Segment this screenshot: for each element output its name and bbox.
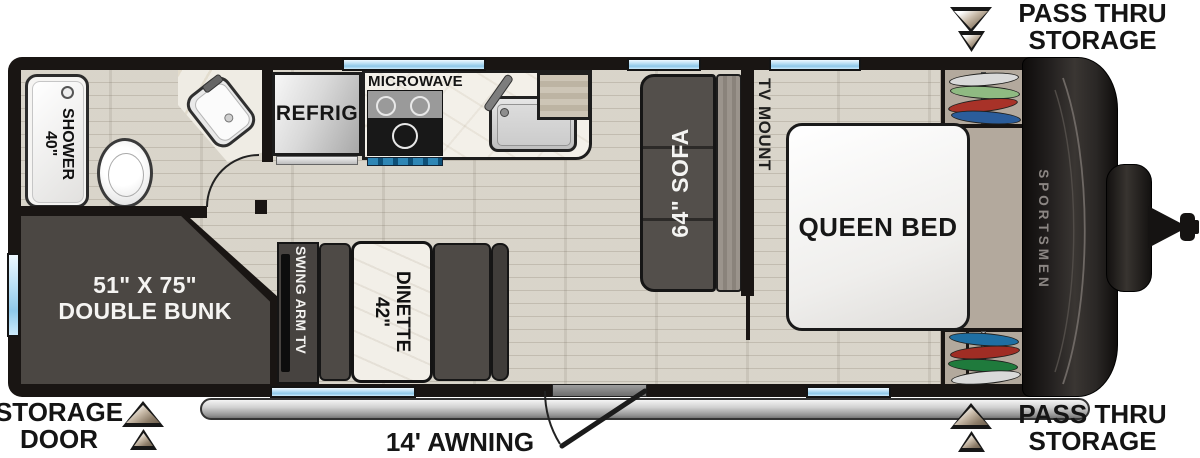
tv-mount-label: TV MOUNT: [754, 78, 774, 238]
queen-bed-label: QUEEN BED: [798, 212, 957, 243]
window-kitchen: [342, 58, 486, 71]
pass-thru-storage-bottom-label: PASS THRU STORAGE: [990, 401, 1195, 455]
shower-label: 40"SHOWER: [30, 83, 88, 205]
down-arrow-icon: [950, 7, 992, 33]
refrigerator: REFRIG: [272, 72, 362, 156]
tv-icon: [281, 254, 290, 372]
up-arrow-icon: [130, 429, 157, 450]
up-arrow-fill: [134, 433, 153, 446]
propane-tank-cover: [1106, 164, 1152, 292]
swing-arm-tv-label: SWING ARM TV: [293, 246, 309, 380]
sofa-label: 64" SOFA: [667, 83, 689, 283]
double-bunk-label: 51" X 75" DOUBLE BUNK: [35, 272, 255, 324]
window-sofa: [627, 58, 701, 71]
down-arrow-icon: [958, 31, 985, 52]
window-bedroom-top: [769, 58, 861, 71]
pass-thru-bottom-line2: STORAGE: [990, 428, 1195, 455]
shower-label-line1: 40": [42, 108, 59, 180]
up-arrow-icon: [958, 431, 985, 452]
down-arrow-fill: [954, 11, 988, 29]
window-bedroom-bottom: [806, 386, 891, 398]
storage-door-line2: DOOR: [0, 426, 124, 453]
dinette-label: 42" DINETTE: [371, 271, 413, 352]
burner-icon: [376, 96, 396, 116]
dinette-label-line1: 42": [371, 271, 392, 352]
storage-door-label: STORAGE DOOR: [0, 399, 124, 453]
up-arrow-fill: [126, 405, 160, 423]
refrigerator-vent: [276, 156, 358, 165]
up-arrow-fill: [962, 435, 981, 448]
bunk-label-line1: 51" X 75": [35, 272, 255, 298]
kitchen-faucet-knob: [500, 108, 509, 117]
bunk-label-line2: DOUBLE BUNK: [35, 298, 255, 324]
hitch-coupler: [1180, 213, 1195, 241]
pass-thru-top-line2: STORAGE: [990, 27, 1195, 54]
dinette-label-line2: DINETTE: [392, 271, 413, 352]
window-bunk-left: [7, 253, 20, 337]
toilet-bowl: [108, 153, 144, 197]
microwave-label: MICROWAVE: [368, 73, 478, 90]
shower-label-line2: SHOWER: [59, 108, 76, 180]
down-arrow-fill: [962, 35, 981, 48]
toilet: [97, 138, 153, 208]
storage-door-line1: STORAGE: [0, 399, 124, 426]
up-arrow-icon: [122, 401, 164, 427]
awning-tube: [200, 398, 1090, 420]
counter-end-cabinet: [537, 72, 591, 120]
burner-icon: [392, 123, 418, 149]
shower: 40"SHOWER: [25, 74, 89, 208]
refrigerator-label: REFRIG: [276, 102, 358, 126]
tv-mount-wall: [741, 70, 754, 296]
dinette-table: 42" DINETTE: [351, 241, 433, 383]
brand-label: SPORTSMEN: [1035, 120, 1051, 340]
swing-arm-tv-panel: SWING ARM TV: [277, 242, 319, 384]
sofa-back-panel: [716, 74, 742, 292]
floorplan-canvas: 40"SHOWER REFRIG MICROWAVE 64" SOFA TV M…: [0, 0, 1200, 458]
burner-icon: [410, 96, 430, 116]
stove-drawer: [367, 157, 443, 166]
wall-bathroom-door-stub: [255, 200, 267, 214]
dinette-bench-right: [433, 243, 491, 381]
hitch-jack: [1193, 220, 1199, 234]
pass-thru-storage-top-label: PASS THRU STORAGE: [990, 0, 1195, 54]
pass-thru-bottom-line1: PASS THRU: [990, 401, 1195, 428]
queen-bed: QUEEN BED: [786, 123, 970, 331]
pass-thru-top-line1: PASS THRU: [990, 0, 1195, 27]
tv-mount-wall-extension: [746, 296, 750, 340]
stove-cooktop: [367, 90, 443, 156]
window-dinette: [270, 386, 416, 398]
dinette-armrest: [491, 243, 509, 381]
dinette-bench-left: [319, 243, 351, 381]
entry-door: [552, 384, 647, 397]
hitch-tongue: [1148, 206, 1188, 248]
awning-label: 14' AWNING: [375, 427, 545, 458]
